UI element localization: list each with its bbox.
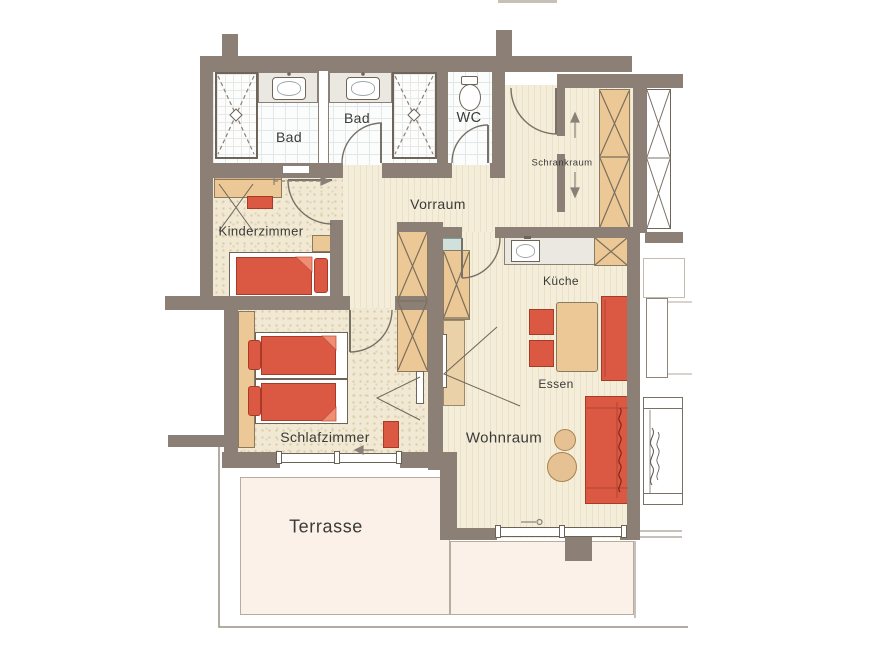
wall-neighbor-top-line [498, 0, 557, 3]
wall-wc-bottom-a [438, 163, 452, 178]
single-bed-mattress [236, 257, 312, 295]
room-label-wohnraum: Wohnraum [466, 430, 542, 447]
window-mullion [276, 451, 282, 464]
double-bed-mattress-1 [261, 336, 336, 375]
planter-cap-top [643, 397, 683, 409]
wall-corner-step [440, 452, 457, 540]
room-label-schrankraum: Schrankraum [532, 158, 593, 169]
side-table-small [554, 429, 576, 451]
wall-top-stub-2 [496, 30, 512, 58]
wall-kitchen-top-a [428, 227, 462, 238]
window-mullion [495, 525, 501, 538]
dining-chair-2 [529, 340, 554, 367]
stool-schlafzimmer [383, 421, 399, 448]
room-label-schlafzimmer: Schlafzimmer [280, 429, 370, 445]
window-mullion [396, 451, 402, 464]
exterior-window [646, 298, 668, 378]
wall-left-stub-2 [168, 435, 224, 447]
dining-bench [601, 296, 628, 381]
room-label-kinderzimmer: Kinderzimmer [219, 224, 304, 239]
sink-2 [346, 77, 380, 100]
single-bed-pillow [314, 258, 328, 293]
sink-basin [516, 244, 535, 258]
terrace-area-left [240, 477, 450, 615]
kitchen-sink [511, 240, 540, 262]
wall-left [200, 56, 213, 310]
wall-wc-right [492, 70, 505, 165]
room-label-bad-2: Bad [344, 110, 370, 126]
wall-right-lower [627, 233, 640, 538]
cabinet-wohnraum-side [443, 250, 470, 320]
wall-schlaf-top-a [213, 296, 350, 310]
wall-bath-wc [437, 70, 448, 165]
wall-left-stub [165, 296, 213, 310]
planter-cap-bottom [643, 493, 683, 505]
sink-basin [351, 81, 375, 96]
sink-basin [277, 81, 301, 96]
wall-schlaf-left [224, 310, 238, 468]
desk-chair [247, 196, 273, 209]
wall-bad2-bottom [382, 163, 438, 178]
sofa [585, 396, 628, 504]
window-mullion [559, 525, 565, 538]
wall-central-cap [397, 222, 428, 232]
room-label-essen: Essen [538, 377, 573, 391]
floor-corridor [343, 178, 397, 308]
sliding-panel-schlafzimmer [416, 371, 424, 404]
wall-top [200, 56, 632, 72]
pocket-door-bad1 [282, 165, 310, 174]
wall-right-stub [645, 232, 683, 243]
wall-bath-partition [318, 70, 329, 164]
terrace-area-right [450, 541, 634, 615]
headboard-shelf [238, 311, 255, 448]
toilet-bowl [459, 84, 481, 111]
window-mullion [334, 451, 340, 464]
wall-schrank-left-a [557, 88, 565, 136]
nightstand [312, 235, 332, 252]
wall-schlaf-bottom-a [222, 452, 280, 468]
bed-pillow-2 [248, 386, 261, 416]
wall-kitchen-top-b [495, 227, 633, 238]
shower-2 [392, 72, 437, 159]
room-label-kueche: Küche [543, 274, 579, 288]
wall-top-stub-1 [222, 34, 238, 58]
wall-wc-bottom-b [490, 163, 505, 178]
wall-central [428, 222, 443, 470]
wall-top-right [557, 74, 683, 88]
kitchen-cabinet [594, 237, 628, 266]
room-label-vorraum: Vorraum [410, 196, 466, 212]
bed-pillow-1 [248, 340, 261, 370]
room-label-bad-1: Bad [276, 129, 302, 145]
floor-plan: Bad Bad WC Schrankraum Vorraum Kinderzim… [0, 0, 880, 660]
wardrobe-schrankraum [599, 89, 630, 228]
shower-1 [215, 72, 258, 159]
wall-bad1-bottom [213, 163, 343, 178]
planter-box [643, 397, 683, 505]
exterior-niche [643, 258, 685, 298]
side-table-large [547, 452, 577, 482]
dining-chair-1 [529, 309, 554, 335]
window-mullion [621, 525, 627, 538]
room-label-wc: WC [457, 110, 482, 126]
wall-right-upper [633, 88, 647, 233]
dining-table [556, 302, 598, 372]
sink-1 [272, 77, 306, 100]
double-bed-mattress-2 [261, 383, 336, 421]
shaft-outside [646, 89, 671, 229]
room-label-terrasse: Terrasse [289, 517, 363, 538]
wall-wohn-bottom-a [450, 528, 497, 540]
